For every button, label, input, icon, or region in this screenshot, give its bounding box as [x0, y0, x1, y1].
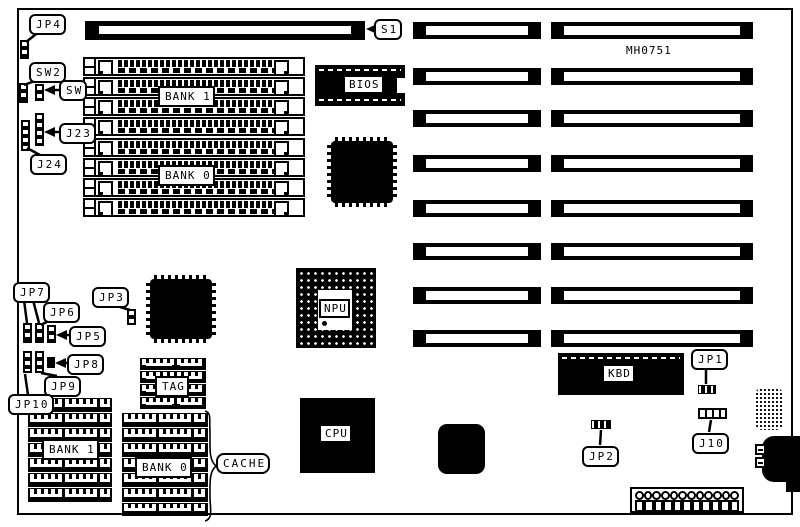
jp10-jumper [23, 351, 32, 373]
bank0-chip-row [122, 413, 208, 427]
cache-label: CACHE [216, 453, 270, 474]
din-pin-block [755, 444, 766, 455]
din-pin-block [755, 457, 766, 468]
expansion-slot [551, 287, 753, 304]
bios-chip: BIOS [315, 65, 405, 106]
jp9-jumper [35, 351, 44, 373]
bank1-top-label: BANK 1 [158, 86, 215, 107]
expansion-slot [551, 68, 753, 85]
kbd-label: KBD [604, 366, 633, 381]
bank1-chip-row [28, 488, 112, 502]
simm-slot-5 [83, 138, 305, 157]
expansion-slot [551, 243, 753, 260]
expansion-slot [413, 243, 541, 260]
jp4-label: JP4 [29, 14, 66, 35]
j23-connector-right [35, 113, 44, 146]
s1-label: S1 [374, 19, 402, 40]
j10-connector [698, 408, 727, 419]
jp3-label: JP3 [92, 287, 129, 308]
bank0-chip-row [122, 443, 208, 457]
tag-chip-row [140, 358, 206, 370]
simm-slot-8 [83, 198, 305, 217]
power-connector-oval-pins [635, 491, 739, 500]
expansion-slot [551, 110, 753, 127]
jp1-label: JP1 [691, 349, 728, 370]
bank0-top-label: BANK 0 [158, 165, 215, 186]
expansion-slot [413, 200, 541, 217]
power-connector [630, 487, 744, 513]
expansion-slot [551, 22, 753, 39]
simm-slot-1 [83, 57, 305, 76]
npu-socket: NPU [296, 268, 376, 348]
expansion-slot [413, 330, 541, 347]
jp3-jumper [127, 309, 136, 325]
jp2-jumper [591, 420, 611, 429]
oscillator-component [755, 388, 783, 430]
expansion-slot [551, 200, 753, 217]
expansion-slot [413, 22, 541, 39]
jp7-label: JP7 [13, 282, 50, 303]
sw-label: SW [59, 80, 87, 101]
jp8-jumper [47, 357, 55, 368]
chipset-qfp-left [146, 275, 216, 343]
bank1-chip-row [28, 413, 112, 427]
bank0-chip-row [122, 503, 208, 516]
expansion-slot [413, 68, 541, 85]
jp5-jumper [47, 325, 56, 343]
jp2-label: JP2 [582, 446, 619, 467]
aux-chip [438, 424, 485, 474]
cpu-label: CPU [321, 426, 350, 441]
jp6-label: JP6 [43, 302, 80, 323]
keyboard-din-connector-step [786, 481, 800, 492]
jp7-jumper [23, 323, 32, 343]
bank1-chip-row [28, 458, 112, 472]
expansion-slot [413, 155, 541, 172]
npu-label: NPU [319, 299, 350, 318]
bank1-bottom-label: BANK 1 [42, 439, 99, 460]
j23-label: J23 [59, 123, 96, 144]
npu-pin1-dot [322, 321, 327, 326]
j10-label: J10 [692, 433, 729, 454]
keyboard-din-connector [762, 436, 800, 482]
expansion-slot [413, 110, 541, 127]
jp5-label: JP5 [69, 326, 106, 347]
tag-label: TAG [155, 376, 189, 397]
jp8-label: JP8 [67, 354, 104, 375]
kbd-bios-chip: KBD [558, 353, 684, 395]
board-id-text: MH0751 [626, 44, 672, 57]
j23-connector-left [21, 120, 30, 151]
s1-switch-bar [85, 21, 365, 40]
bank0-chip-row [122, 488, 208, 502]
bank1-chip-row [28, 473, 112, 487]
simm-slot-4 [83, 117, 305, 136]
jp4-jumper [20, 40, 29, 59]
jp1-jumper [698, 385, 716, 394]
jp6-jumper [35, 323, 44, 343]
cpu-chip: CPU [300, 398, 375, 473]
expansion-slot [551, 155, 753, 172]
bank0-bottom-label: BANK 0 [135, 457, 192, 478]
j24-label: J24 [30, 154, 67, 175]
bios-label: BIOS [345, 77, 382, 92]
expansion-slot [551, 330, 753, 347]
sw2-label: SW2 [29, 62, 66, 83]
expansion-slot [413, 287, 541, 304]
jp10-label: JP10 [8, 394, 54, 415]
power-connector-square-pins [635, 500, 739, 512]
sw2-switch [19, 83, 28, 103]
tag-chip-row [140, 397, 206, 409]
bank0-chip-row [122, 428, 208, 442]
sw-switch [35, 84, 44, 101]
chipset-qfp-top [327, 137, 397, 207]
